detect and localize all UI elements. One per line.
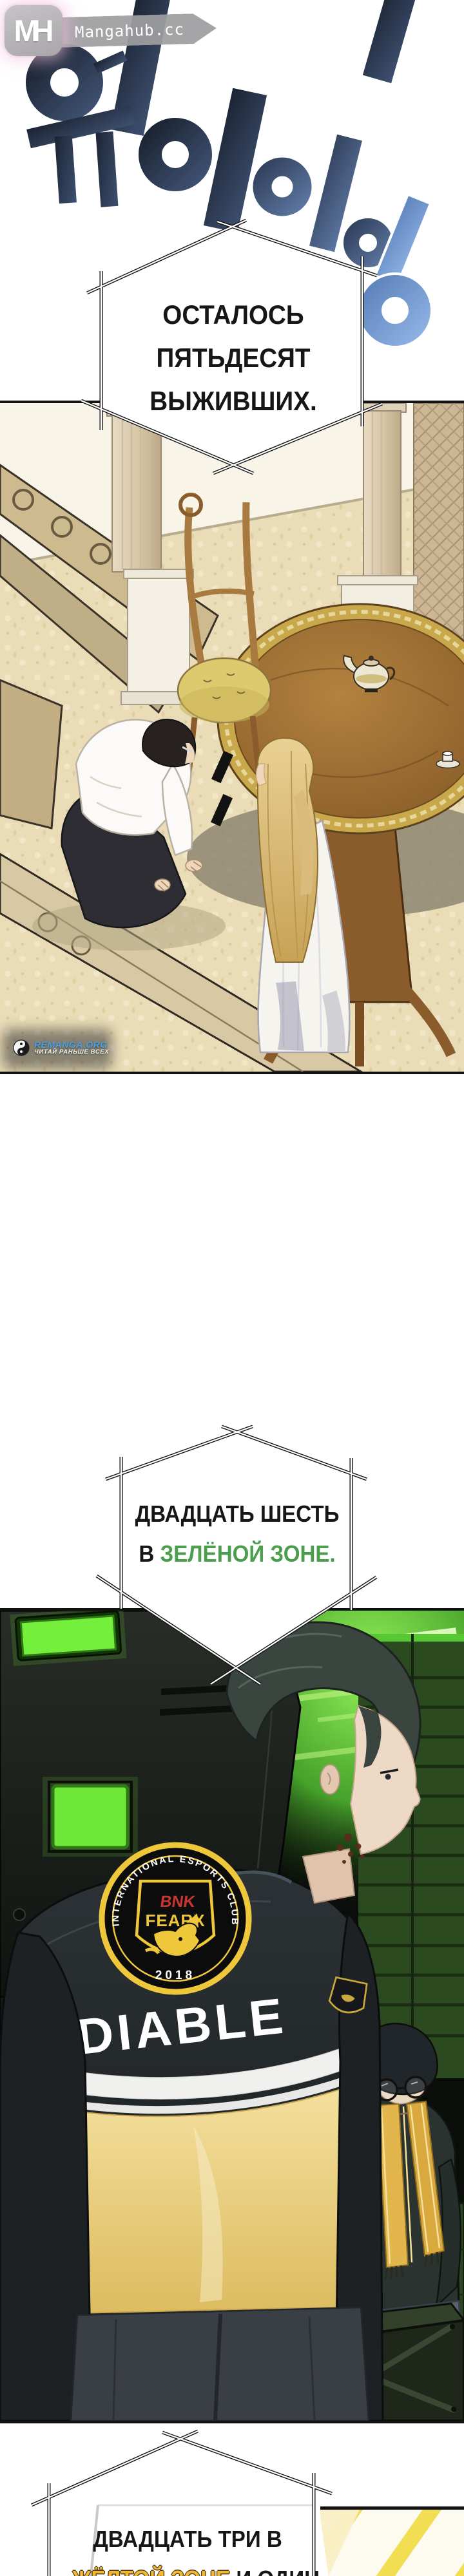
emblem-team-bnk: BNK bbox=[159, 1893, 197, 1911]
caption-line: ДВАДЦАТЬ ТРИ В bbox=[72, 2519, 304, 2559]
p2-green-screen-mid bbox=[43, 1777, 138, 1857]
site-banner: Mangahub.cc bbox=[37, 13, 217, 48]
site-logo-badge: MH bbox=[5, 5, 63, 56]
caption-line: ОСТАЛОСЬ bbox=[111, 293, 354, 336]
sfx-glyph-4 bbox=[309, 135, 385, 260]
caption-box-2: ДВАДЦАТЬ ШЕСТЬ ВЗЕЛЁНОЙ ЗОНЕ. bbox=[126, 1494, 349, 1574]
caption-line: ВЗЕЛЁНОЙ ЗОНЕ. bbox=[126, 1534, 349, 1574]
sfx-glyph-3 bbox=[204, 0, 420, 232]
site-name: Mangahub.cc bbox=[53, 19, 202, 41]
site-logo-initials: MH bbox=[14, 13, 46, 48]
caption-text: И ОДИН bbox=[236, 2566, 320, 2576]
caption-line: ПЯТЬДЕСЯТ bbox=[111, 336, 354, 379]
p2-green-screen-top bbox=[10, 1611, 126, 1666]
panel-2-art: INTERNATIONAL ESPORTS CLUB 2018 BNK FEAR… bbox=[0, 1611, 464, 2421]
panel-1-art bbox=[0, 403, 464, 1072]
comic-panel-1: REMANGA.ORG ЧИТАЙ РАНЬШЕ ВСЕХ bbox=[0, 401, 464, 1074]
comic-panel-3-corner bbox=[320, 2506, 464, 2576]
sfx-glyph-2 bbox=[26, 106, 200, 222]
yin-yang-icon bbox=[13, 1039, 30, 1056]
remanga-watermark: REMANGA.ORG ЧИТАЙ РАНЬШЕ ВСЕХ bbox=[13, 1039, 109, 1056]
green-zone-highlight: ЗЕЛЁНОЙ ЗОНЕ. bbox=[160, 1540, 335, 1567]
emblem-year: 2018 bbox=[155, 1969, 195, 1982]
sfx-glyph-5 bbox=[371, 193, 432, 335]
caption-text: В bbox=[139, 1540, 154, 1567]
caption-box-3: ДВАДЦАТЬ ТРИ В ЖЁЛТОЙ ЗОНЕИ ОДИН bbox=[72, 2519, 304, 2576]
caption-line: ЖЁЛТОЙ ЗОНЕИ ОДИН bbox=[72, 2559, 304, 2576]
comic-panel-2: INTERNATIONAL ESPORTS CLUB 2018 BNK FEAR… bbox=[0, 1608, 464, 2423]
yellow-zone-highlight: ЖЁЛТОЙ ЗОНЕ bbox=[72, 2566, 231, 2576]
esports-emblem: INTERNATIONAL ESPORTS CLUB 2018 BNK FEAR… bbox=[102, 1845, 249, 1992]
webtoon-page: Mangahub.cc MH bbox=[0, 0, 464, 2576]
caption-line: ВЫЖИВШИХ. bbox=[111, 379, 354, 422]
caption-box-1: ОСТАЛОСЬ ПЯТЬДЕСЯТ ВЫЖИВШИХ. bbox=[111, 293, 354, 422]
watermark-tagline: ЧИТАЙ РАНЬШЕ ВСЕХ bbox=[34, 1049, 109, 1056]
site-logo[interactable]: Mangahub.cc MH bbox=[0, 0, 232, 64]
caption-line: ДВАДЦАТЬ ШЕСТЬ bbox=[126, 1494, 349, 1534]
